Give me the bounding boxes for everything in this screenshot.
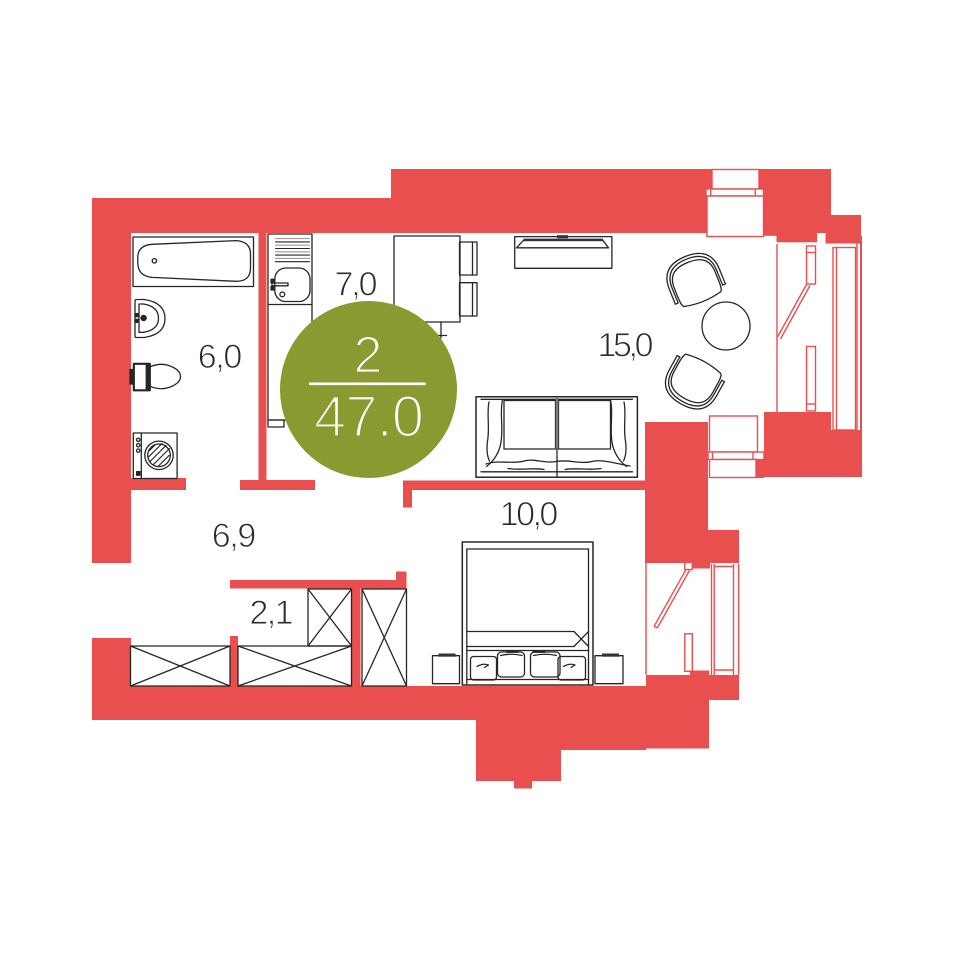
svg-text:6,9: 6,9 [212,517,257,555]
svg-text:2,1: 2,1 [250,594,294,632]
svg-text:7,0: 7,0 [335,266,378,304]
svg-text:47.0: 47.0 [314,385,424,450]
svg-text:6,0: 6,0 [198,338,243,376]
svg-text:2: 2 [354,327,383,385]
svg-text:10,0: 10,0 [500,496,559,534]
svg-text:15,0: 15,0 [598,327,654,365]
